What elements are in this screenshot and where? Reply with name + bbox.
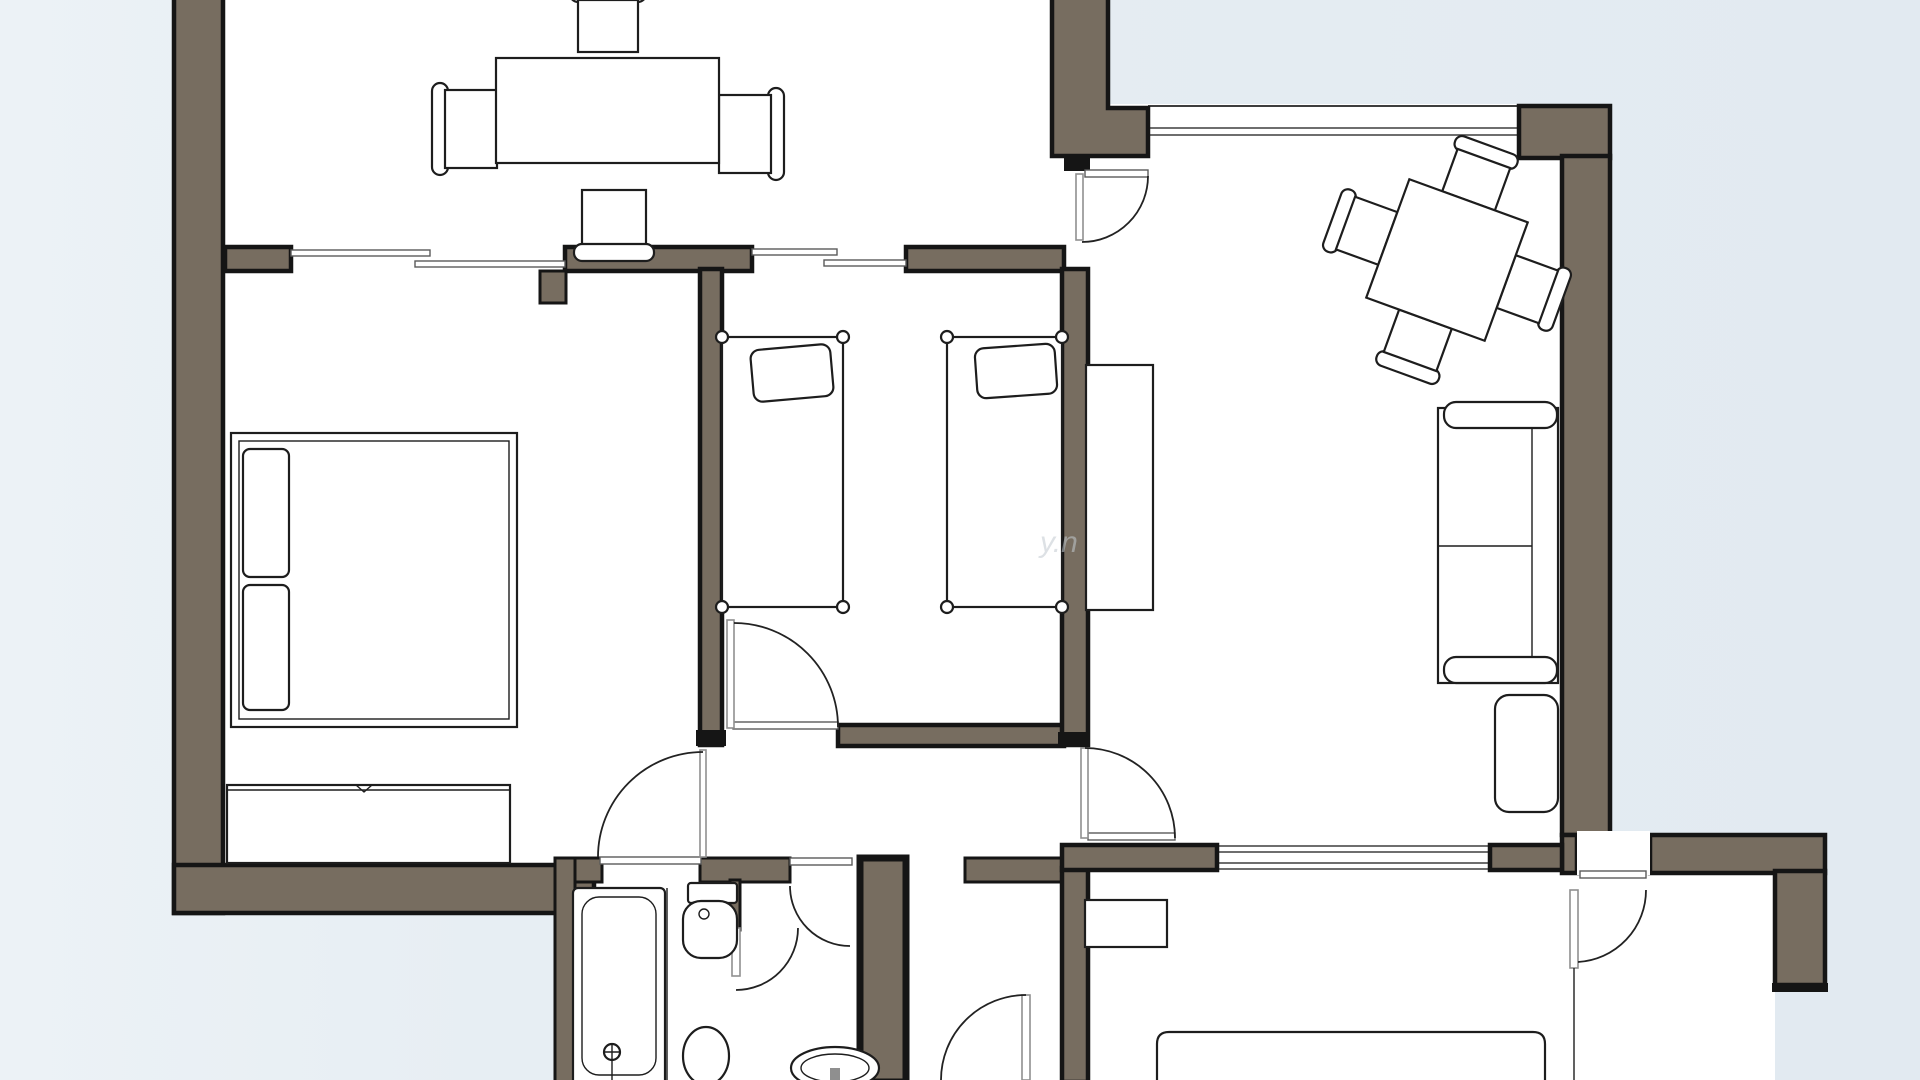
wall-bottom-right-b <box>1650 835 1825 873</box>
chair-left <box>445 90 497 168</box>
bedroom-door-sill <box>600 857 701 864</box>
wall-divider-stub <box>225 247 291 271</box>
hall-living-door-sill <box>1088 833 1175 840</box>
pillow-2 <box>243 585 289 710</box>
entry-door-sill <box>1085 170 1148 177</box>
wall-top-middle-notch <box>1064 154 1090 171</box>
children-door-sill <box>733 722 838 729</box>
wall-lobby-top <box>965 858 1064 882</box>
sofa-armrest-top <box>1444 402 1557 428</box>
wall-bottom-left <box>174 865 594 913</box>
backroom-door-leaf <box>1570 890 1578 968</box>
toilet-bowl <box>683 901 737 958</box>
wall-backroom-top-left <box>1062 845 1217 870</box>
children-door-leaf <box>727 620 734 728</box>
window-glazing-b <box>1217 863 1490 869</box>
wall-children-living-cap <box>1058 732 1090 746</box>
sliding-door-track-a <box>291 250 430 256</box>
floor-plan: y.n <box>0 0 1920 1080</box>
backroom-door-sill <box>1580 871 1646 878</box>
bed2-corner-1 <box>941 331 953 343</box>
wall-backroom-top-right <box>1490 845 1562 870</box>
dining-table <box>496 58 719 163</box>
children-sliding-track-a <box>752 249 837 255</box>
bed1-corner-3 <box>716 601 728 613</box>
bed2-corner-3 <box>941 601 953 613</box>
dresser <box>227 785 510 863</box>
bedroom-door-leaf <box>700 750 706 857</box>
bed1-corner-2 <box>837 331 849 343</box>
nightstand <box>1085 900 1167 947</box>
living-cabinet <box>1086 365 1153 610</box>
wall-wc-right <box>860 858 906 1080</box>
hall-living-door-leaf <box>1081 748 1088 838</box>
chair-back-bottom <box>574 244 654 261</box>
sofa-armrest-bottom <box>1444 657 1557 683</box>
entry-door-leaf <box>1076 174 1083 240</box>
wall-divider-return-stub <box>540 271 566 303</box>
bed2-corner-2 <box>1056 331 1068 343</box>
wall-right-return <box>1775 871 1825 985</box>
sofa <box>1438 402 1558 683</box>
lobby-door-leaf <box>1022 995 1030 1080</box>
wall-right-return-cap <box>1772 983 1828 992</box>
wall-left-outer <box>174 0 223 913</box>
single-bed-2-pillow <box>974 343 1057 398</box>
children-sliding-track-b <box>824 260 906 266</box>
backroom-door-gap <box>1577 831 1650 875</box>
floor-plan-canvas: y.n <box>0 0 1920 1080</box>
bed1-corner-1 <box>716 331 728 343</box>
pedestal-sink <box>683 1027 729 1080</box>
ottoman <box>1495 695 1558 812</box>
wall-divider-right <box>906 247 1064 271</box>
wc-basin-tap <box>830 1068 840 1080</box>
wc-door-sill <box>790 858 852 865</box>
sliding-door-track-b <box>415 261 565 267</box>
watermark-text: y.n <box>1038 526 1078 559</box>
chair-bottom <box>582 190 646 246</box>
bedroom-furniture <box>227 433 517 863</box>
single-bed-1-pillow <box>750 344 834 403</box>
bed2-corner-4 <box>1056 601 1068 613</box>
chair-top <box>578 0 638 52</box>
chair-right <box>719 95 771 173</box>
wall-bedroom-children-cap <box>696 730 726 746</box>
bed1-corner-4 <box>837 601 849 613</box>
window-glazing <box>1148 128 1519 135</box>
wall-bath-top-a <box>575 858 602 882</box>
pillow-1 <box>243 449 289 577</box>
wall-bath-top-b <box>700 858 790 882</box>
backroom-bed <box>1157 1032 1545 1080</box>
wall-children-bottom <box>838 725 1064 746</box>
window-glazing-a <box>1217 846 1490 852</box>
wall-right-outer <box>1562 156 1610 835</box>
wall-top-right-block <box>1519 106 1610 158</box>
